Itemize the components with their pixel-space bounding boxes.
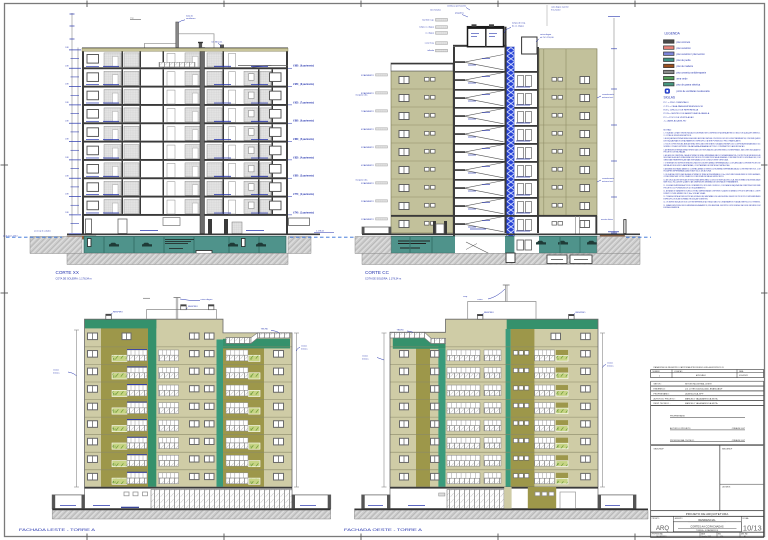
svg-text:APROVADO: APROVADO: [696, 374, 707, 377]
svg-text:RESIDENCIAL: RESIDENCIAL: [698, 518, 716, 522]
svg-text:casa maq.: casa maq.: [425, 43, 435, 45]
svg-text:piso de madeira: piso de madeira: [677, 65, 694, 68]
svg-text:PROJETO DE ARQUITETURA: PROJETO DE ARQUITETURA: [686, 512, 730, 516]
svg-text:caixa dagua: caixa dagua: [201, 299, 214, 301]
svg-text:COTA DE SOLEIRA: 1.178,34 m: COTA DE SOLEIRA: 1.178,34 m: [365, 277, 401, 280]
svg-text:marquise dec.: marquise dec.: [355, 95, 368, 97]
svg-text:mureta divisa: mureta divisa: [601, 218, 614, 221]
svg-text:CORTES AA CC/FACHADAS: CORTES AA CC/FACHADAS: [690, 524, 724, 528]
svg-text:V.740_ (1 pavimento): V.740_ (1 pavimento): [293, 211, 314, 214]
svg-text:revestimento: revestimento: [602, 93, 615, 96]
svg-text:RODAPES IMPERMEABILIZADOS ATE: RODAPES IMPERMEABILIZADOS ATE 30cm DE AL…: [664, 170, 712, 173]
svg-text:textura: textura: [607, 364, 614, 367]
svg-text:P.C. = PISO CIMENTADO: P.C. = PISO CIMENTADO: [664, 101, 690, 104]
svg-text:MARCELO VALADARES DA MOTA: MARCELO VALADARES DA MOTA: [685, 402, 718, 405]
svg-text:LEGENDA: LEGENDA: [665, 32, 681, 36]
svg-text:CREA/DF 00/?: CREA/DF 00/?: [732, 439, 746, 442]
svg-text:ARQ: ARQ: [656, 526, 669, 532]
svg-text:cx. dagua: cx. dagua: [425, 32, 435, 34]
svg-text:9 PAVIMENTO: 9 PAVIMENTO: [361, 74, 375, 77]
svg-text:2.88: 2.88: [65, 102, 68, 104]
svg-text:piso ceramico antiderrapante: piso ceramico antiderrapante: [677, 71, 707, 74]
svg-text:$ /: $ /: [113, 462, 116, 466]
svg-text:revest.: revest.: [362, 355, 369, 358]
svg-text:piso de pedra: piso de pedra: [677, 59, 692, 62]
svg-text:RESP. TECNICO :: RESP. TECNICO :: [654, 403, 671, 405]
svg-text:ULTIMOS: ULTIMOS: [722, 487, 731, 489]
svg-text:$ /: $ /: [113, 392, 116, 396]
svg-text:4 PAVIMENTO: 4 PAVIMENTO: [361, 164, 375, 167]
svg-text:revest.: revest.: [53, 369, 60, 372]
svg-text:1: 1: [659, 375, 660, 377]
svg-text:/ /: / /: [250, 462, 252, 466]
svg-text:DE ESQUADRIAS E DETALHAMENTO E: DE ESQUADRIAS E DETALHAMENTO ESPECIFICO …: [664, 140, 742, 143]
svg-text:externo text.: externo text.: [602, 96, 614, 99]
svg-text:TELHD: TELHD: [397, 330, 405, 332]
svg-text:SEDUH/DF: SEDUH/DF: [722, 448, 733, 450]
svg-text:V.800_ (3 pavimento): V.800_ (3 pavimento): [293, 175, 314, 178]
svg-text:V.830_ (4 pavimento): V.830_ (4 pavimento): [293, 156, 314, 159]
svg-text:DES. IND: DES. IND: [741, 533, 748, 535]
svg-text:ESCALA GRAFICA.: ESCALA GRAFICA.: [664, 206, 680, 209]
svg-text:10/13: 10/13: [743, 524, 762, 533]
svg-text:$ /: $ /: [113, 357, 116, 361]
svg-text:$ /: $ /: [113, 427, 116, 431]
svg-text:2.88: 2.88: [65, 47, 68, 49]
svg-text:QUINTA LTDA..EPP: QUINTA LTDA..EPP: [685, 392, 704, 395]
svg-text:1 PAVIMENTO: 1 PAVIMENTO: [361, 218, 375, 221]
svg-text:tel. fibrocim.: tel. fibrocim.: [212, 41, 224, 44]
svg-text:/ /: / /: [557, 463, 559, 466]
svg-text:2.88: 2.88: [65, 212, 68, 214]
svg-text:Q 4 LOTES 500/540-0000, BRASIL: Q 4 LOTES 500/540-0000, BRASILIA/DF: [685, 388, 723, 391]
svg-text:RESPIRO: RESPIRO: [576, 312, 586, 314]
svg-text:2.88: 2.88: [65, 84, 68, 86]
svg-text:V.950_ (8 pavimento): V.950_ (8 pavimento): [293, 83, 314, 86]
svg-text:Brasilia, 2021: Brasilia, 2021: [702, 536, 712, 538]
svg-text:PROJETO DE FACHADAS.: PROJETO DE FACHADAS.: [664, 151, 687, 154]
svg-text:area verde: area verde: [677, 77, 689, 80]
svg-text:ENDERECO :: ENDERECO :: [654, 389, 667, 391]
svg-text:NUMERO: NUMERO: [653, 371, 661, 373]
svg-text:TELHD: TELHD: [261, 329, 269, 331]
svg-text:6 PAVIMENTO: 6 PAVIMENTO: [361, 128, 375, 131]
svg-text:CREA/DF 00/?: CREA/DF 00/?: [732, 427, 746, 430]
svg-text:NBR 9050, INCLUSIVE QUANTO AS: NBR 9050, INCLUSIVE QUANTO AS DIMENSOES …: [664, 181, 739, 184]
svg-text:2 PAVIMENTO: 2 PAVIMENTO: [361, 200, 375, 203]
svg-text:/ /: / /: [557, 428, 559, 431]
svg-text:textura: textura: [362, 357, 369, 360]
svg-text:V.770_ (2 pavimento): V.770_ (2 pavimento): [293, 193, 314, 196]
svg-text:PROJETO: PROJETO: [652, 518, 660, 520]
svg-text:TORRE A - 10 PAVIMENTOS: TORRE A - 10 PAVIMENTOS: [696, 529, 719, 532]
svg-text:P.V = POCO DE VENTILACAO: P.V = POCO DE VENTILACAO: [664, 116, 695, 119]
svg-text:/ /: / /: [557, 481, 559, 484]
svg-text:SOBRE O PLANO EXTERNO DA FACHA: SOBRE O PLANO EXTERNO DA FACHADA ACABADA…: [664, 145, 746, 148]
svg-text:/ /: / /: [250, 445, 252, 449]
svg-text:2.88: 2.88: [65, 139, 68, 141]
svg-text:V.890_ (6 pavimento): V.890_ (6 pavimento): [293, 120, 314, 123]
svg-text:SEDUH/DF: SEDUH/DF: [654, 448, 665, 450]
svg-text:piso de grama sintetica: piso de grama sintetica: [677, 84, 701, 87]
svg-text:resp.: resp.: [130, 17, 135, 20]
svg-text:7 PAVIMENTO: 7 PAVIMENTO: [361, 110, 375, 113]
svg-text:SIGLAS: SIGLAS: [664, 96, 676, 100]
svg-text:externo text.: externo text.: [602, 180, 614, 183]
svg-text:$ /: $ /: [113, 480, 116, 484]
svg-text:/ /: / /: [557, 375, 559, 378]
svg-text:caixa: caixa: [477, 299, 483, 301]
svg-text:barrilete sup.: barrilete sup.: [422, 18, 434, 21]
svg-text:PROPRIETARIO :: PROPRIETARIO :: [654, 392, 671, 395]
svg-text:piso ceramico: piso ceramico: [677, 47, 692, 50]
svg-text:NOTAS:: NOTAS:: [664, 129, 672, 132]
svg-text:tubo de: tubo de: [186, 15, 194, 18]
svg-text:pingadeira: pingadeira: [455, 12, 465, 15]
svg-text:RESPIRO: RESPIRO: [188, 306, 198, 308]
svg-text:RESPIRO: RESPIRO: [484, 312, 494, 314]
svg-text:SETOR :: SETOR :: [654, 384, 663, 386]
svg-text:V.980_ (9 pavimento): V.980_ (9 pavimento): [293, 65, 314, 68]
svg-text:5 PAVIMENTO: 5 PAVIMENTO: [361, 146, 375, 149]
svg-text:/ /: / /: [557, 446, 559, 449]
svg-text:SETOR INDUSTRIAL LESTE: SETOR INDUSTRIAL LESTE: [685, 383, 712, 386]
svg-text:/ /: / /: [250, 392, 252, 396]
svg-text:/ /: / /: [557, 411, 559, 414]
svg-text:INSTALACOES HIDRO-SANITARIAS,: INSTALACOES HIDRO-SANITARIAS, COM TAMPAS…: [664, 164, 731, 167]
svg-text:revestimento: revestimento: [602, 177, 615, 180]
svg-text:resp.: resp.: [463, 295, 468, 298]
svg-text:2.88: 2.88: [65, 65, 68, 67]
svg-text:piso ceramico / piso tecnico: piso ceramico / piso tecnico: [677, 53, 706, 56]
svg-text:ESPECIFICOS E AS NORMAS TECNIC: ESPECIFICOS E AS NORMAS TECNICAS VIGENTE…: [664, 197, 709, 200]
svg-text:caixa dagua: caixa dagua: [540, 34, 552, 36]
svg-text:PARA FINS DE REGISTRO CARTORIA: PARA FINS DE REGISTRO CARTORIAL/PROCESSO…: [654, 366, 725, 369]
svg-text:FACHADA OESTE - TORRE A: FACHADA OESTE - TORRE A: [344, 528, 423, 532]
svg-text:/ /: / /: [250, 375, 252, 379]
svg-text:1.178,34: 1.178,34: [316, 231, 325, 233]
svg-text:C.P.V = CASA PARA EMPREENDEDOR: C.P.V = CASA PARA EMPREENDEDOR: [664, 105, 704, 108]
svg-text:textura: textura: [53, 371, 60, 374]
svg-text:MARCELO VALADARES DA MOTA: MARCELO VALADARES DA MOTA: [685, 397, 718, 400]
svg-text:RESPIRO: RESPIRO: [113, 311, 123, 313]
svg-text:inf. N 1.210,00: inf. N 1.210,00: [540, 37, 554, 39]
svg-text:/ /: / /: [250, 427, 252, 431]
svg-text:/ /: / /: [557, 393, 559, 396]
svg-text:FACHADA LESTE - TORRE A: FACHADA LESTE - TORRE A: [19, 528, 96, 532]
svg-text:14. OS NIVEIS INDICADOS NOS CO: 14. OS NIVEIS INDICADOS NOS CORTES REFER…: [664, 201, 761, 204]
svg-text:2.88: 2.88: [65, 175, 68, 177]
svg-text:(av.d.ata) 1.170,0: (av.d.ata) 1.170,0: [3, 234, 18, 237]
svg-text:GRELHAS HEMISFERICAS NAS ENTRA: GRELHAS HEMISFERICAS NAS ENTRADAS DOS CO…: [664, 159, 730, 162]
svg-text:rufo metalico: rufo metalico: [430, 9, 441, 12]
svg-text:tampa cx. dagua: tampa cx. dagua: [419, 26, 435, 29]
svg-text:2.88: 2.88: [65, 120, 68, 122]
svg-text:$ /: $ /: [113, 410, 116, 414]
svg-text:ponto de ventilacao na alvenar: ponto de ventilacao na alvenaria: [677, 90, 711, 93]
svg-text:1/50: 1/50: [720, 536, 723, 538]
svg-text:piso concreto: piso concreto: [677, 41, 691, 44]
svg-text:/ /: / /: [250, 357, 252, 361]
svg-text:2. COTAS E NIVEIS EM METROS.: 2. COTAS E NIVEIS EM METROS.: [664, 134, 693, 137]
svg-text:E.M = CIRCULO DE REFERENCIA: E.M = CIRCULO DE REFERENCIA: [664, 109, 699, 112]
svg-text:PROFISSIONAL TECNICO: PROFISSIONAL TECNICO: [670, 439, 695, 442]
svg-text:/ /: / /: [250, 480, 252, 484]
svg-text:LOCACAO: LOCACAO: [674, 370, 683, 373]
svg-text:ventilacao permanente: ventilacao permanente: [447, 5, 466, 8]
svg-text:AUTOR DO PROJETO: AUTOR DO PROJETO: [670, 427, 691, 430]
svg-text:revest.: revest.: [607, 362, 614, 365]
svg-text:tampa de insp.: tampa de insp.: [512, 22, 526, 25]
svg-text:V.860_ (5 pavimento): V.860_ (5 pavimento): [293, 138, 314, 141]
svg-text:FOLHA :: FOLHA :: [743, 517, 750, 520]
svg-text:2.88: 2.88: [65, 157, 68, 159]
svg-text:revest.: revest.: [301, 345, 308, 348]
svg-text:telhado: telhado: [427, 49, 434, 52]
svg-text:/ /: / /: [250, 410, 252, 414]
svg-text:CONFORME NBR 14718, FIXADOS CO: CONFORME NBR 14718, FIXADOS CONFORME DET…: [664, 175, 725, 178]
svg-text:/ /: / /: [557, 358, 559, 361]
svg-text:ventilacao: ventilacao: [186, 17, 196, 20]
svg-text:N 1.212,40: N 1.212,40: [551, 9, 560, 11]
svg-text:COTA DE SOLEIRA: 1.178,34 m: COTA DE SOLEIRA: 1.178,34 m: [56, 277, 92, 280]
svg-text:$ /: $ /: [113, 445, 116, 449]
svg-text:textura: textura: [301, 347, 308, 350]
svg-text:da cx. dagua: da cx. dagua: [512, 26, 525, 28]
svg-text:av.ni.top 0 a.dados: av.ni.top 0 a.dados: [34, 230, 51, 233]
svg-text:AUTOR DO PROJETO :: AUTOR DO PROJETO :: [654, 397, 677, 400]
svg-text:CORTE CC: CORTE CC: [365, 270, 390, 275]
svg-text:P.V.N.= SENTIDO DE ABERTURA DA: P.V.N.= SENTIDO DE ABERTURA DA JANELA: [664, 112, 710, 115]
svg-text:01/04/2021: 01/04/2021: [739, 375, 748, 377]
svg-text:2.88: 2.88: [65, 194, 68, 196]
svg-text:DIREITO LIVRE MINIMO DE 2,30m: DIREITO LIVRE MINIMO DE 2,30m SOB AS VIG…: [664, 192, 707, 195]
svg-text:J = JANELA/CAIXILHO: J = JANELA/CAIXILHO: [664, 119, 687, 122]
svg-text:$ /: $ /: [113, 375, 116, 379]
svg-text:CORTE XX: CORTE XX: [56, 270, 79, 275]
svg-text:PROPRIETARIO: PROPRIETARIO: [670, 415, 685, 418]
svg-text:caixa dagua superior: caixa dagua superior: [551, 6, 569, 9]
svg-text:marquise dec.: marquise dec.: [355, 180, 368, 182]
svg-text:3 PAVIMENTO: 3 PAVIMENTO: [361, 182, 375, 185]
svg-text:V.920_ (7 pavimento): V.920_ (7 pavimento): [293, 101, 314, 104]
svg-text:PROJETO DO FORNECEDOR DO EQUIP: PROJETO DO FORNECEDOR DO EQUIPAMENTO.: [664, 186, 707, 189]
